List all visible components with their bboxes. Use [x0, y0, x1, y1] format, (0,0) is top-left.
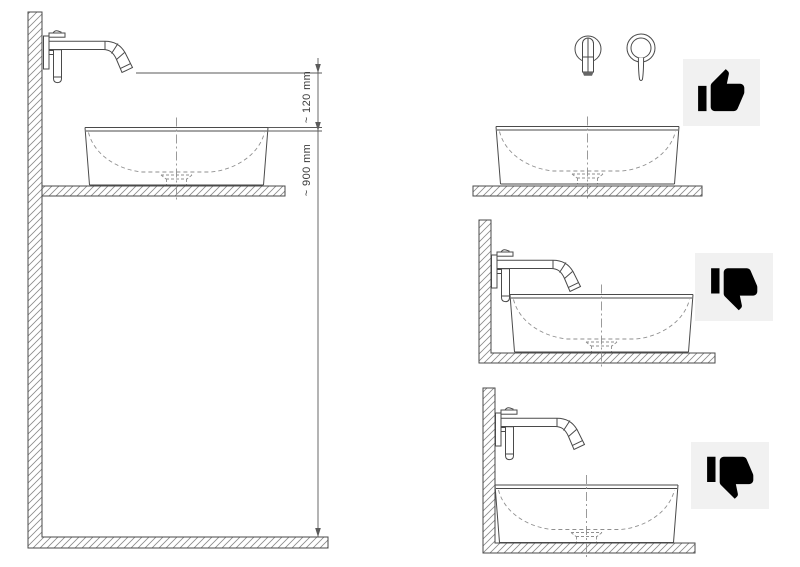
countertop: [42, 186, 285, 196]
wall-mixer-faucet: [492, 250, 581, 302]
wall-mixer-faucet: [496, 408, 585, 460]
dimension-arrow: [315, 528, 321, 537]
rejected-badge: [695, 253, 773, 321]
dimension-arrow: [315, 122, 321, 131]
handle-front-symbol: [627, 34, 655, 81]
wall-and-countertop: [479, 220, 715, 363]
wall-and-floor: [28, 12, 328, 548]
wall-mixer-faucet: [44, 31, 133, 83]
faucet-installation-diagram: ~ 120 mm ~ 900 mm: [0, 0, 800, 567]
panel-front-view-correct: [473, 34, 702, 201]
panel-main-dimensions: [28, 12, 328, 548]
dimension-arrow: [315, 64, 321, 73]
dimension-label-rim-to-floor: ~ 900 mm: [300, 138, 314, 202]
thumbs-up-icon: [683, 59, 760, 126]
thumbs-down-icon: [695, 253, 773, 321]
thumbs-down-icon: [691, 442, 769, 509]
panel-spout-too-low: [479, 220, 715, 369]
panel-basin-against-wall: [483, 388, 695, 559]
diagram-linework: [0, 0, 800, 567]
dimension-label-spout-clearance: ~ 120 mm: [300, 65, 314, 129]
rejected-badge: [691, 442, 769, 509]
spout-front-symbol: [575, 36, 601, 76]
approved-badge: [683, 59, 760, 126]
